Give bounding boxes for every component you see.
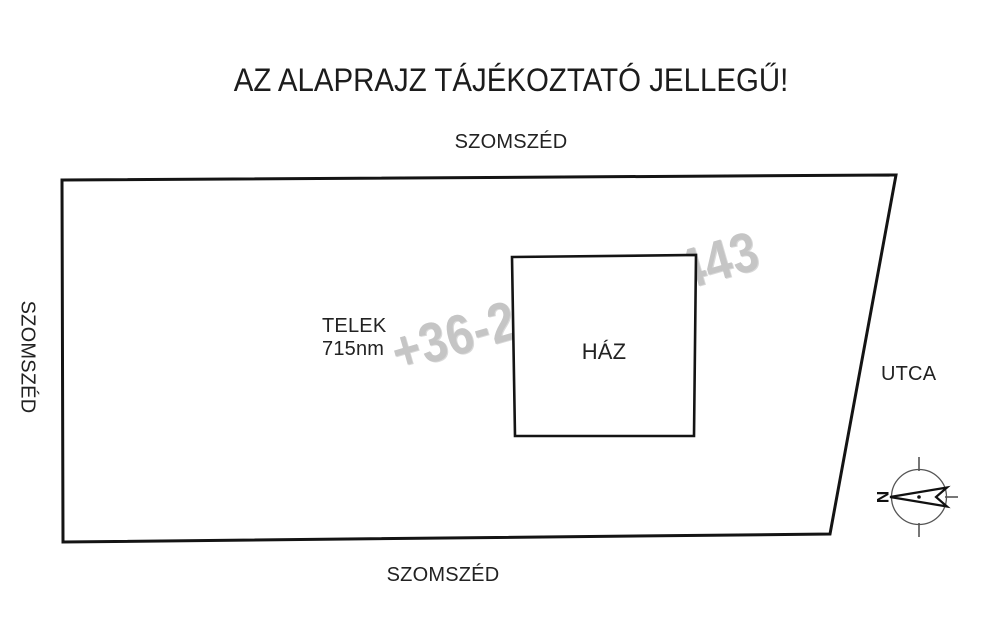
plot-size-label: 715nm <box>322 338 386 361</box>
plot-boundary-outline <box>62 175 896 542</box>
neighbor-label-left: SZOMSZÉD <box>16 301 39 414</box>
plot-name-label: TELEK <box>322 315 386 338</box>
compass: N <box>873 457 958 537</box>
compass-center-dot <box>917 495 921 499</box>
compass-north-label: N <box>873 491 892 503</box>
page-title: AZ ALAPRAJZ TÁJÉKOZTATÓ JELLEGŰ! <box>234 62 789 99</box>
house-label: HÁZ <box>582 339 627 365</box>
neighbor-label-bottom: SZOMSZÉD <box>387 564 500 587</box>
street-label: UTCA <box>881 363 936 386</box>
site-plan-canvas: +36-20-329-3443 N AZ ALAPRAJZ TÁJÉKOZTAT… <box>0 0 1000 625</box>
plot-label: TELEK 715nm <box>322 315 386 361</box>
neighbor-label-top: SZOMSZÉD <box>455 131 568 154</box>
